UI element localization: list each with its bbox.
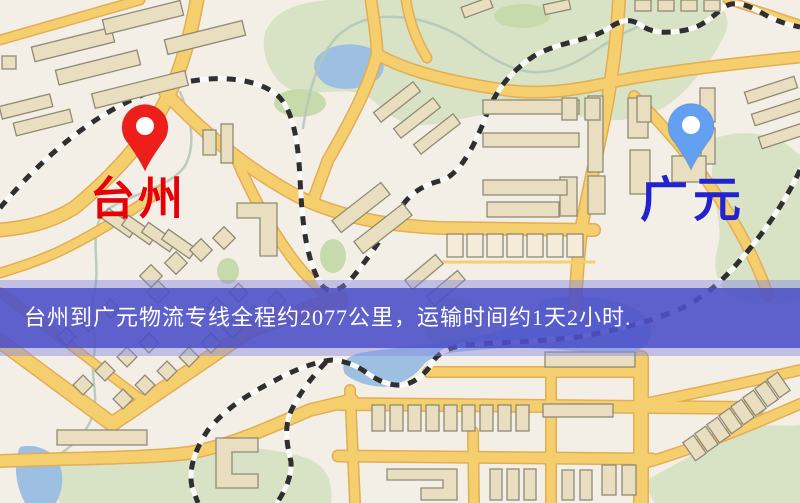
- destination-label: 广元: [640, 177, 746, 225]
- banner-text: 台州到广元物流专线全程约2077公里，运输时间约1天2小时.: [24, 288, 632, 348]
- origin-label: 台州: [90, 177, 186, 222]
- map-viewport: 台州 广元 台州到广元物流专线全程约2077公里，运输时间约1天2小时.: [0, 0, 800, 503]
- route-info-banner: 台州到广元物流专线全程约2077公里，运输时间约1天2小时.: [0, 280, 800, 356]
- map-canvas[interactable]: [0, 0, 800, 503]
